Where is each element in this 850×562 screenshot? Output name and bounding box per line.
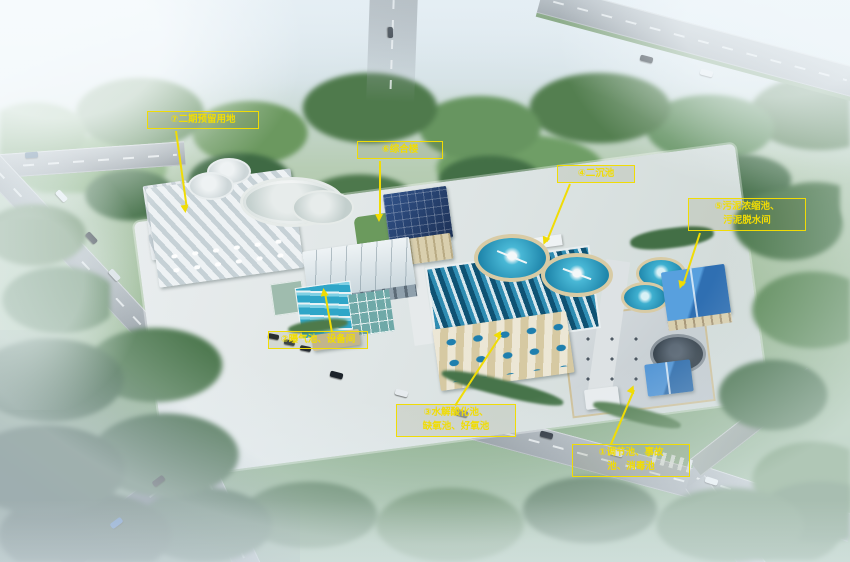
clarifier-hub bbox=[573, 271, 582, 277]
callout-6-arrow bbox=[375, 214, 383, 222]
callout-5-sludge: ⑤污泥浓缩池、 污泥脱水间 bbox=[688, 198, 806, 231]
tree-band-bottom bbox=[240, 470, 850, 562]
yard-building-ridge bbox=[665, 362, 671, 394]
callout-7-line1: ⑦二期预留用地 bbox=[151, 113, 255, 127]
callout-2-line1: ②曝气池、设备间 bbox=[272, 333, 364, 347]
callout-3-line1: ③水解酸化池、 bbox=[400, 406, 512, 420]
callout-6-leader bbox=[379, 161, 381, 217]
road-top-vertical bbox=[366, 0, 418, 103]
callout-5-line2: 污泥脱水间 bbox=[692, 214, 802, 228]
callout-7-arrow bbox=[180, 204, 189, 213]
callout-4-clarifier: ④二沉池 bbox=[557, 165, 635, 183]
dewatering-roof-ridge bbox=[690, 268, 699, 318]
callout-1-line2: 池、消毒池 bbox=[576, 460, 686, 474]
callout-3-line2: 缺氧池、好氧池 bbox=[400, 420, 512, 434]
callout-1-regulating: ①调节池、事故 池、消毒池 bbox=[572, 444, 690, 477]
car bbox=[388, 27, 393, 38]
clarifier-tank-2 bbox=[541, 253, 613, 297]
callout-7-reserved-land: ⑦二期预留用地 bbox=[147, 111, 259, 129]
callout-5-line1: ⑤污泥浓缩池、 bbox=[692, 200, 802, 214]
car bbox=[25, 152, 38, 159]
callout-2-aeration: ②曝气池、设备间 bbox=[268, 331, 368, 349]
callout-6-admin-building: ⑥综合楼 bbox=[357, 141, 443, 159]
lane-dashes bbox=[390, 0, 395, 91]
callout-4-line1: ④二沉池 bbox=[561, 167, 631, 181]
storage-tank-small-2 bbox=[188, 172, 234, 200]
bottom-left-shadow bbox=[0, 330, 300, 562]
callout-2-arrow bbox=[319, 287, 328, 296]
yard-equipment-dots bbox=[580, 330, 650, 390]
callout-1-line1: ①调节池、事故 bbox=[576, 446, 686, 460]
clarifier-tank-1 bbox=[474, 234, 550, 282]
callout-6-line1: ⑥综合楼 bbox=[361, 143, 439, 157]
callout-3-bio-basins: ③水解酸化池、 缺氧池、好氧池 bbox=[396, 404, 516, 437]
tree-band-left bbox=[0, 190, 110, 350]
clarifier-hub bbox=[507, 253, 517, 260]
storage-tank-medium bbox=[292, 190, 354, 225]
aerial-rendering-canvas: ⑦二期预留用地 ⑥综合楼 ④二沉池 ⑤污泥浓缩池、 污泥脱水间 ②曝气池、设备间… bbox=[0, 0, 850, 562]
yard-blue-roof-building bbox=[644, 359, 694, 396]
